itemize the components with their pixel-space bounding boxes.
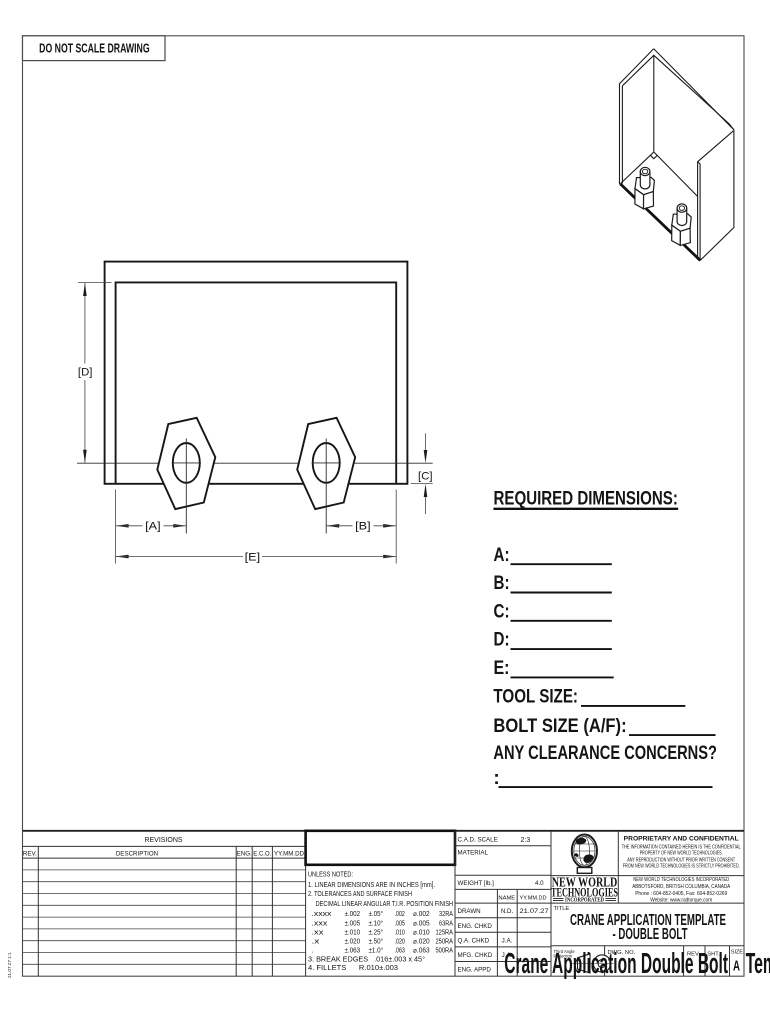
svg-text:±.10°: ±.10° <box>369 918 384 927</box>
svg-text:REVISIONS: REVISIONS <box>144 837 182 844</box>
svg-text:±.010: ±.010 <box>345 928 361 937</box>
svg-text:REV.: REV. <box>23 850 37 857</box>
svg-text:.xxxx: .xxxx <box>311 909 331 918</box>
svg-text:.002: .002 <box>395 909 405 918</box>
svg-text:A: A <box>733 958 740 975</box>
svg-text:YY.MM.DD: YY.MM.DD <box>274 850 305 857</box>
svg-text:NAME: NAME <box>498 896 515 902</box>
svg-text:ENG. APPD: ENG. APPD <box>458 967 492 974</box>
svg-text:MATERIAL: MATERIAL <box>458 849 489 856</box>
svg-text:.: . <box>311 945 313 954</box>
svg-text:Crane Application Double Bolt: Crane Application Double Bolt <box>504 948 728 980</box>
svg-text:BOLT SIZE (A/F):: BOLT SIZE (A/F): <box>493 716 626 737</box>
svg-text:J.A.: J.A. <box>502 937 513 944</box>
svg-text:.010: .010 <box>395 928 405 937</box>
svg-text:DRAWN: DRAWN <box>458 908 481 915</box>
svg-text:ABBOTSFORD, BRITISH COLUMBIA,: ABBOTSFORD, BRITISH COLUMBIA, CANADA <box>632 884 730 890</box>
svg-text:Temp: Temp <box>746 948 770 980</box>
svg-text:N.D.: N.D. <box>501 908 514 915</box>
svg-text::: : <box>493 768 499 789</box>
svg-text:REQUIRED DIMENSIONS:: REQUIRED DIMENSIONS: <box>494 489 678 510</box>
svg-text:DECIMAL LINEAR ANGULAR T.I.R.: DECIMAL LINEAR ANGULAR T.I.R. POSITION F… <box>316 899 454 908</box>
svg-text:Phone : 604-852-0405, Fax: 604: Phone : 604-852-0405, Fax: 604-852-0269 <box>635 891 727 897</box>
svg-text:INCORPORATED: INCORPORATED <box>565 898 605 904</box>
svg-text:SIZE: SIZE <box>731 950 743 956</box>
svg-text:C.A.D. SCALE: C.A.D. SCALE <box>458 837 498 844</box>
svg-text:⌀.005: ⌀.005 <box>413 918 430 927</box>
svg-text:⌀.010: ⌀.010 <box>413 928 430 937</box>
svg-text:PROPRIETARY AND CONFIDENTIAL: PROPRIETARY AND CONFIDENTIAL <box>624 835 739 842</box>
svg-text:C:: C: <box>494 601 510 622</box>
svg-text:[B]: [B] <box>355 521 371 533</box>
svg-text:FROM NEW WORLD TECHNOLOGIES IS: FROM NEW WORLD TECHNOLOGIES IS STRICTLY … <box>623 863 740 869</box>
svg-text:[C]: [C] <box>418 471 433 483</box>
svg-text:YY.MM.DD: YY.MM.DD <box>520 896 547 902</box>
svg-text:±.063: ±.063 <box>345 945 361 954</box>
svg-text:⌀.002: ⌀.002 <box>413 909 430 918</box>
svg-text:.x: .x <box>311 937 320 946</box>
svg-text:.005: .005 <box>395 918 405 927</box>
svg-text:ENG. CHKD: ENG. CHKD <box>458 923 493 930</box>
svg-text:.020: .020 <box>395 937 405 946</box>
svg-text:TITLE: TITLE <box>554 906 570 912</box>
svg-text:4. FILLETS R.010±.003: 4. FILLETS R.010±.003 <box>308 963 398 972</box>
svg-text:32RA: 32RA <box>439 909 453 918</box>
svg-text:TOOL SIZE:: TOOL SIZE: <box>493 687 578 708</box>
svg-text:±.05°: ±.05° <box>369 909 384 918</box>
svg-text:DESCRIPTION: DESCRIPTION <box>116 850 158 857</box>
svg-text:Q.A. CHKD: Q.A. CHKD <box>458 937 490 944</box>
svg-text:WEIGHT [lb.]: WEIGHT [lb.] <box>458 880 495 887</box>
svg-text:[D]: [D] <box>78 367 93 379</box>
svg-text:NEW WORLD TECHNOLOGIES INCORPO: NEW WORLD TECHNOLOGIES INCORPORATED <box>633 877 729 883</box>
svg-text:Website: www.radtorque.com: Website: www.radtorque.com <box>650 897 712 903</box>
svg-text:250RA: 250RA <box>436 937 454 946</box>
svg-text:E:: E: <box>494 658 510 679</box>
svg-text:21.07.27: 21.07.27 <box>520 908 550 915</box>
svg-text:±.25°: ±.25° <box>369 928 384 937</box>
svg-text:21.07.27 1:1: 21.07.27 1:1 <box>7 952 12 978</box>
svg-text:[A]: [A] <box>145 521 161 533</box>
svg-text:DO NOT SCALE DRAWING: DO NOT SCALE DRAWING <box>39 42 149 56</box>
svg-text:±.005: ±.005 <box>345 918 361 927</box>
svg-text:B:: B: <box>494 573 510 594</box>
svg-text:- DOUBLE BOLT: - DOUBLE BOLT <box>613 926 688 943</box>
svg-text:4.0: 4.0 <box>535 880 544 887</box>
svg-text:1. LINEAR DIMENSIONS ARE IN IN: 1. LINEAR DIMENSIONS ARE IN INCHES [mm]. <box>308 880 435 889</box>
svg-text:PROPERTY OF NEW WORLD TECHNOLO: PROPERTY OF NEW WORLD TECHNOLOGIES. <box>640 851 723 857</box>
svg-text:±1.0°: ±1.0° <box>369 945 384 954</box>
svg-text:.063: .063 <box>395 945 405 954</box>
svg-text:⌀.063: ⌀.063 <box>413 945 430 954</box>
svg-text:±.002: ±.002 <box>345 909 361 918</box>
svg-text:D:: D: <box>494 630 510 651</box>
svg-text:A:: A: <box>494 545 510 566</box>
svg-text:2. TOLERANCES AND SURFACE FINI: 2. TOLERANCES AND SURFACE FINISH <box>308 889 412 898</box>
svg-text:.xx: .xx <box>311 928 324 937</box>
svg-text:MFG. CHKD: MFG. CHKD <box>458 952 493 959</box>
svg-text:[E]: [E] <box>245 551 261 563</box>
svg-text:±.50°: ±.50° <box>369 937 384 946</box>
svg-text:63RA: 63RA <box>439 918 453 927</box>
svg-text:E.C.O.: E.C.O. <box>253 850 271 857</box>
svg-text:±.020: ±.020 <box>345 937 361 946</box>
svg-text:⌀.020: ⌀.020 <box>413 937 430 946</box>
svg-text:ANY CLEARANCE CONCERNS?: ANY CLEARANCE CONCERNS? <box>493 743 717 764</box>
svg-text:500RA: 500RA <box>436 945 454 954</box>
svg-text:.xxx: .xxx <box>311 918 328 927</box>
svg-text:UNLESS NOTED:: UNLESS NOTED: <box>308 869 353 878</box>
svg-text:2:3: 2:3 <box>521 837 531 844</box>
svg-text:ENG.: ENG. <box>237 850 252 857</box>
svg-text:125RA: 125RA <box>436 928 454 937</box>
